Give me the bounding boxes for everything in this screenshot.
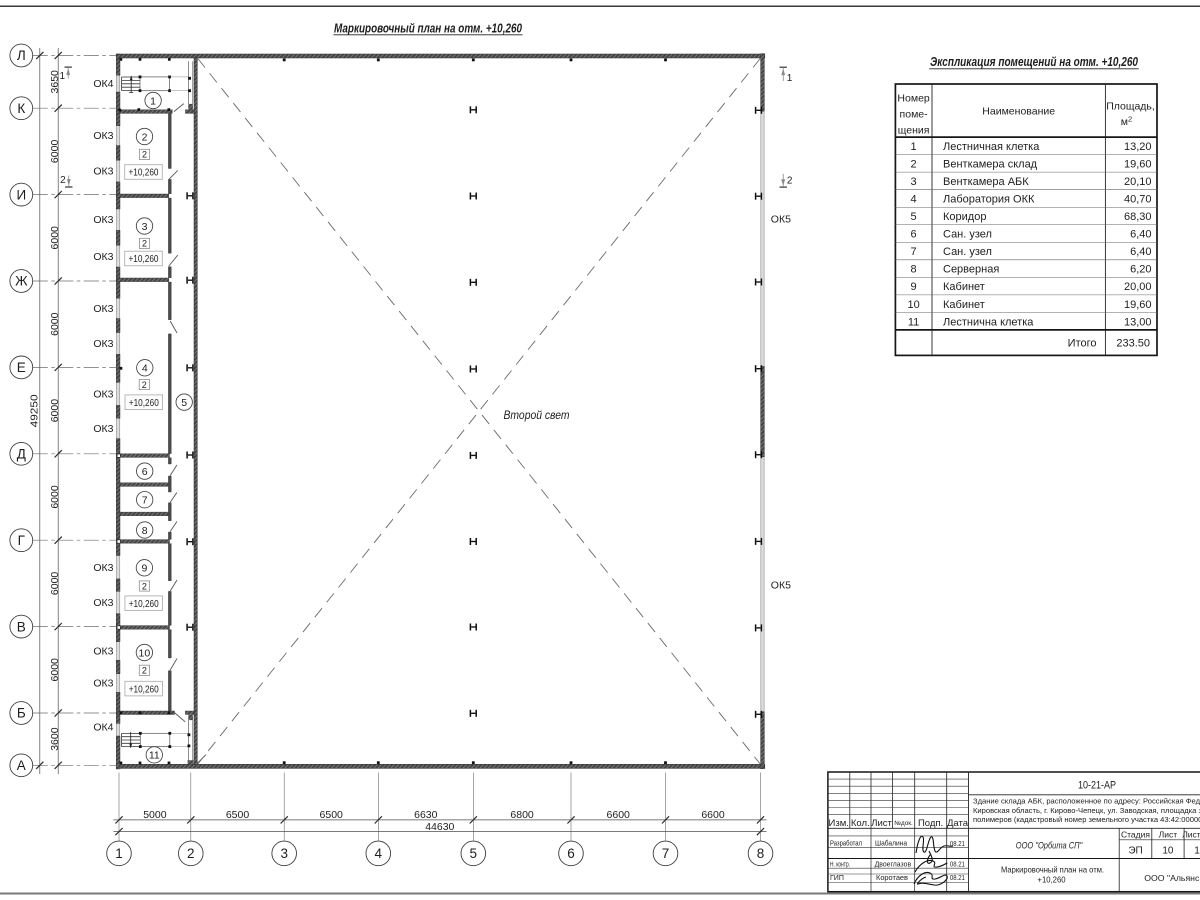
svg-text:10: 10 <box>139 647 151 659</box>
svg-text:ОК3: ОК3 <box>93 678 113 690</box>
svg-text:1: 1 <box>150 95 156 107</box>
svg-text:Сан. узел: Сан. узел <box>943 246 992 258</box>
svg-text:8: 8 <box>142 525 148 537</box>
svg-text:1: 1 <box>1194 846 1200 857</box>
svg-text:Н. контр.: Н. контр. <box>830 861 850 868</box>
svg-text:20,10: 20,10 <box>1124 176 1152 188</box>
svg-text:2: 2 <box>911 159 917 171</box>
svg-text:Лист: Лист <box>1159 829 1178 839</box>
svg-text:5: 5 <box>470 846 478 861</box>
svg-text:Венткамера склад: Венткамера склад <box>943 159 1038 171</box>
svg-text:2: 2 <box>142 150 147 160</box>
svg-text:40,70: 40,70 <box>1124 194 1152 206</box>
svg-text:8: 8 <box>757 846 765 861</box>
svg-text:Наименование: Наименование <box>982 106 1055 118</box>
svg-text:ОК4: ОК4 <box>93 78 113 90</box>
svg-text:ОК3: ОК3 <box>93 166 113 178</box>
svg-text:Шабалина: Шабалина <box>875 839 908 848</box>
svg-text:поме-: поме- <box>900 109 929 121</box>
svg-text:+10,260: +10,260 <box>129 598 159 610</box>
svg-text:6500: 6500 <box>320 809 344 821</box>
svg-text:10: 10 <box>907 299 919 311</box>
svg-text:6000: 6000 <box>49 226 61 250</box>
svg-text:Кол.: Кол. <box>851 818 870 829</box>
svg-text:233.50: 233.50 <box>1116 337 1150 349</box>
svg-text:13,20: 13,20 <box>1124 141 1152 153</box>
svg-text:6630: 6630 <box>414 809 438 821</box>
svg-text:08.21: 08.21 <box>950 841 965 848</box>
svg-text:1: 1 <box>60 71 66 82</box>
svg-text:+10,260: +10,260 <box>129 683 159 695</box>
svg-text:Венткамера АБК: Венткамера АБК <box>943 176 1029 188</box>
svg-text:Дата: Дата <box>947 818 969 829</box>
svg-text:Двоеглазов: Двоеглазов <box>875 859 912 868</box>
svg-text:Экспликация помещений на отм.: Экспликация помещений на отм. +10,260 <box>930 54 1139 69</box>
svg-text:ОК3: ОК3 <box>93 214 113 226</box>
svg-text:6000: 6000 <box>49 485 61 509</box>
svg-text:Подп.: Подп. <box>918 818 943 829</box>
svg-text:3: 3 <box>911 176 917 188</box>
svg-text:6,40: 6,40 <box>1130 229 1151 241</box>
svg-text:5: 5 <box>181 397 187 409</box>
svg-text:Г: Г <box>18 533 26 548</box>
svg-text:Листов: Листов <box>1182 829 1200 839</box>
svg-text:Лестничная клетка: Лестничная клетка <box>943 141 1040 153</box>
svg-text:ЭП: ЭП <box>1128 846 1142 857</box>
svg-text:полимеров (кадастровый номер з: полимеров (кадастровый номер земельного … <box>973 815 1200 824</box>
svg-text:08.21: 08.21 <box>950 862 965 869</box>
svg-text:6: 6 <box>142 466 148 478</box>
svg-text:6000: 6000 <box>49 399 61 423</box>
svg-text:6500: 6500 <box>226 809 250 821</box>
svg-text:6600: 6600 <box>607 809 631 821</box>
svg-text:ОК3: ОК3 <box>93 646 113 658</box>
svg-text:Итого: Итого <box>1068 337 1097 349</box>
svg-text:6000: 6000 <box>49 572 61 596</box>
svg-text:2: 2 <box>142 581 147 591</box>
svg-text:ОК3: ОК3 <box>93 423 113 435</box>
svg-text:3600: 3600 <box>49 727 61 751</box>
svg-text:10-21-АР: 10-21-АР <box>1078 779 1116 791</box>
svg-text:3: 3 <box>142 221 148 233</box>
svg-text:Кировская область, г. Кирово-Ч: Кировская область, г. Кирово-Чепецк, ул.… <box>973 806 1200 815</box>
svg-text:2: 2 <box>142 239 147 249</box>
svg-text:11: 11 <box>908 316 919 328</box>
svg-text:9: 9 <box>141 563 147 575</box>
svg-text:Лестнична клетка: Лестнична клетка <box>943 316 1034 328</box>
svg-text:№док.: №док. <box>894 820 913 827</box>
svg-text:6000: 6000 <box>49 658 61 682</box>
svg-text:Кабинет: Кабинет <box>943 281 985 293</box>
svg-text:10: 10 <box>1162 846 1174 857</box>
svg-text:5000: 5000 <box>143 809 167 821</box>
svg-text:И: И <box>16 187 26 202</box>
svg-text:19,60: 19,60 <box>1124 159 1152 171</box>
svg-text:Б: Б <box>17 706 26 721</box>
svg-text:6800: 6800 <box>510 809 534 821</box>
svg-text:6: 6 <box>567 846 575 861</box>
svg-text:Д: Д <box>17 447 26 462</box>
svg-text:4: 4 <box>142 363 148 375</box>
svg-text:Коридор: Коридор <box>943 211 986 223</box>
svg-text:1: 1 <box>787 73 793 84</box>
svg-text:9: 9 <box>911 281 917 293</box>
svg-text:20,00: 20,00 <box>1124 281 1152 293</box>
svg-text:Серверная: Серверная <box>943 264 999 276</box>
svg-text:2: 2 <box>60 175 66 186</box>
svg-text:Маркировочный план на отм.: Маркировочный план на отм. <box>1001 864 1104 874</box>
svg-text:+10,260: +10,260 <box>129 397 159 409</box>
svg-text:Здание склада АБК, расположенн: Здание склада АБК, расположенное по адре… <box>973 797 1200 806</box>
svg-text:ОК5: ОК5 <box>771 580 791 592</box>
svg-text:2: 2 <box>142 666 147 676</box>
svg-text:6,40: 6,40 <box>1130 246 1151 258</box>
svg-text:2: 2 <box>787 175 793 186</box>
svg-text:4: 4 <box>375 846 383 861</box>
svg-text:Площадь,: Площадь, <box>1106 101 1155 113</box>
svg-text:Номер: Номер <box>897 93 929 105</box>
svg-text:1: 1 <box>115 846 123 861</box>
svg-text:4: 4 <box>911 194 917 206</box>
svg-text:44630: 44630 <box>425 821 454 833</box>
svg-text:19,60: 19,60 <box>1124 299 1152 311</box>
svg-text:Коротаев: Коротаев <box>876 873 908 882</box>
svg-text:В: В <box>17 619 26 634</box>
svg-text:11: 11 <box>149 750 160 762</box>
svg-text:7: 7 <box>911 246 917 258</box>
svg-text:ОК3: ОК3 <box>93 251 113 263</box>
svg-text:Е: Е <box>17 360 26 375</box>
svg-text:Ж: Ж <box>15 274 28 289</box>
svg-text:+10,260: +10,260 <box>1038 875 1066 885</box>
svg-text:6,20: 6,20 <box>1130 264 1151 276</box>
svg-text:Второй свет: Второй свет <box>504 410 570 422</box>
svg-text:7: 7 <box>142 495 148 507</box>
svg-text:Кабинет: Кабинет <box>943 299 985 311</box>
svg-text:ОК5: ОК5 <box>771 214 791 226</box>
svg-text:Маркировочный план на отм. +10: Маркировочный план на отм. +10,260 <box>334 20 523 35</box>
svg-text:2: 2 <box>187 846 195 861</box>
svg-text:К: К <box>17 101 25 116</box>
svg-text:8: 8 <box>911 264 917 276</box>
svg-text:Изм.: Изм. <box>829 818 849 829</box>
svg-text:6600: 6600 <box>701 809 725 821</box>
svg-text:49250: 49250 <box>29 394 41 427</box>
svg-text:13,00: 13,00 <box>1124 316 1152 328</box>
svg-text:+10,260: +10,260 <box>129 167 159 179</box>
svg-text:ООО "Альянс: ООО "Альянс <box>1144 873 1200 883</box>
svg-text:ОК4: ОК4 <box>93 721 113 733</box>
svg-text:ОК3: ОК3 <box>93 130 113 142</box>
svg-text:Лаборатория ОКК: Лаборатория ОКК <box>943 194 1035 206</box>
svg-text:Стадия: Стадия <box>1121 829 1150 839</box>
svg-text:ОК3: ОК3 <box>93 562 113 574</box>
svg-text:08.21: 08.21 <box>950 875 965 882</box>
svg-text:5: 5 <box>911 211 917 223</box>
svg-text:щения: щения <box>898 125 930 137</box>
svg-text:1: 1 <box>911 141 917 153</box>
svg-text:ГИП: ГИП <box>830 875 844 882</box>
svg-text:Л: Л <box>17 48 26 63</box>
svg-text:2: 2 <box>142 380 147 390</box>
svg-text:6000: 6000 <box>49 312 61 336</box>
svg-text:2: 2 <box>142 131 148 143</box>
svg-text:Лист: Лист <box>871 818 892 829</box>
svg-text:А: А <box>17 758 26 773</box>
svg-text:Сан. узел: Сан. узел <box>943 229 992 241</box>
svg-text:68,30: 68,30 <box>1124 211 1152 223</box>
svg-text:ОК3: ОК3 <box>93 389 113 401</box>
svg-text:ООО "Орбита СП": ООО "Орбита СП" <box>1016 840 1083 850</box>
svg-text:ОК3: ОК3 <box>93 597 113 609</box>
svg-text:+10,260: +10,260 <box>129 253 159 265</box>
svg-text:7: 7 <box>662 846 670 861</box>
svg-text:ОК3: ОК3 <box>93 303 113 315</box>
svg-text:6000: 6000 <box>49 140 61 164</box>
svg-text:ОК3: ОК3 <box>93 338 113 350</box>
svg-text:6: 6 <box>911 229 917 241</box>
svg-text:Разработал: Разработал <box>830 840 862 848</box>
svg-text:3: 3 <box>280 846 288 861</box>
